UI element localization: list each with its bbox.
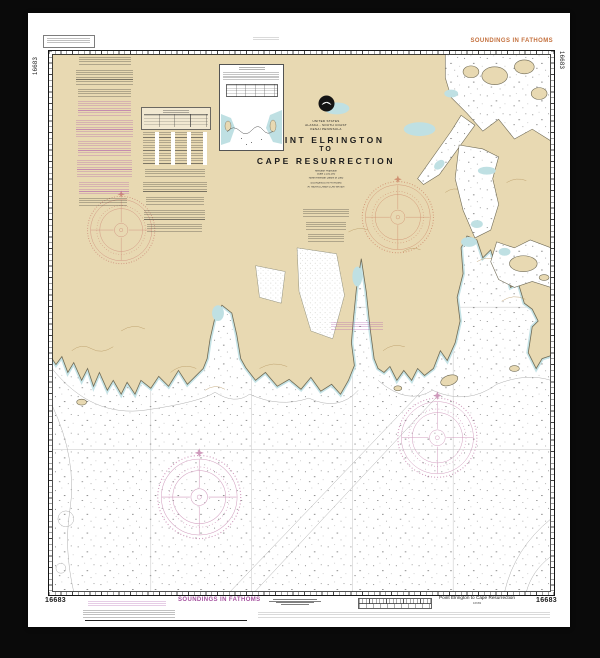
title-region: ALASKA - SOUTH COAST [291, 124, 361, 126]
chart-number-bottom-right: 16683 [536, 597, 557, 604]
edition-note-text [47, 38, 90, 44]
note-block [146, 197, 204, 206]
title-scale: Scale 1:100,000 [297, 173, 356, 174]
caution-note [79, 182, 129, 194]
edition-note-box [43, 35, 95, 48]
figures-columns [143, 132, 207, 165]
note-block [76, 70, 133, 85]
publisher-line [276, 602, 314, 603]
inset-map [219, 64, 284, 151]
bottom-right-title-text: Point Elrington to Cape Resurrection [431, 596, 523, 600]
title-subregion: KENAI PENINSULA [291, 128, 361, 130]
publisher-line [273, 599, 317, 600]
note-block [79, 198, 127, 207]
note-block [303, 209, 349, 218]
bottom-right-title: Point Elrington to Cape Resurrection 166… [418, 596, 536, 608]
chart-neatline: UNITED STATES ALASKA - SOUTH COAST KENAI… [48, 50, 555, 596]
tidal-information-table [141, 107, 211, 130]
soundings-label-bottom: SOUNDINGS IN FATHOMS [178, 597, 261, 603]
caution-note [78, 141, 131, 156]
bottom-note-left [83, 610, 175, 618]
caution-note [77, 160, 132, 178]
inset-paragraph [223, 72, 279, 81]
note-block [306, 222, 346, 230]
top-center-note [253, 37, 279, 41]
publisher-block [268, 599, 322, 605]
chart-number-bottom-left: 16683 [45, 597, 66, 604]
note-block [79, 57, 131, 66]
bottom-right-subtitle: 16683 [448, 602, 507, 605]
noaa-logo [318, 95, 335, 112]
note-block [145, 169, 205, 178]
note-block [147, 224, 202, 232]
bottom-note-right [258, 612, 550, 618]
publisher-line [269, 601, 321, 602]
title-country: UNITED STATES [291, 120, 361, 122]
inset-title [239, 67, 265, 70]
soundings-label-top: SOUNDINGS IN FATHOMS [465, 38, 553, 44]
title-soundings-1: SOUNDINGS IN FATHOMS [297, 182, 356, 183]
framed-chart-photo: { "artwork": { "kind": "NOAA nautical ch… [0, 0, 600, 658]
bottom-magenta-note [88, 601, 166, 607]
chart-number-side-left: 16683 [33, 57, 39, 75]
note-block [308, 234, 344, 242]
bottom-rule [85, 620, 247, 621]
table-grid [144, 114, 208, 127]
title-line-3: CAPE RESURRECTION [256, 156, 396, 166]
note-block [78, 89, 131, 98]
title-datum: North American Datum of 1983 [297, 177, 356, 178]
border-ticks-right [551, 51, 554, 595]
border-ticks-bottom [49, 592, 554, 595]
note-block [144, 210, 205, 220]
note-block [143, 182, 207, 193]
title-soundings-2: AT MEAN LOWER LOW WATER [297, 186, 356, 187]
chart-number-side-right: 16683 [558, 51, 564, 69]
inset-map-drawing [221, 98, 282, 148]
publisher-line [281, 604, 309, 605]
table-title [163, 110, 189, 113]
caution-note [76, 120, 133, 137]
inset-table [226, 84, 278, 97]
coast-caution-note [331, 322, 383, 330]
caution-note [78, 101, 131, 116]
title-projection: Mercator Projection [297, 170, 356, 171]
chart-sheet: SOUNDINGS IN FATHOMS 16683 16683 [28, 13, 570, 627]
